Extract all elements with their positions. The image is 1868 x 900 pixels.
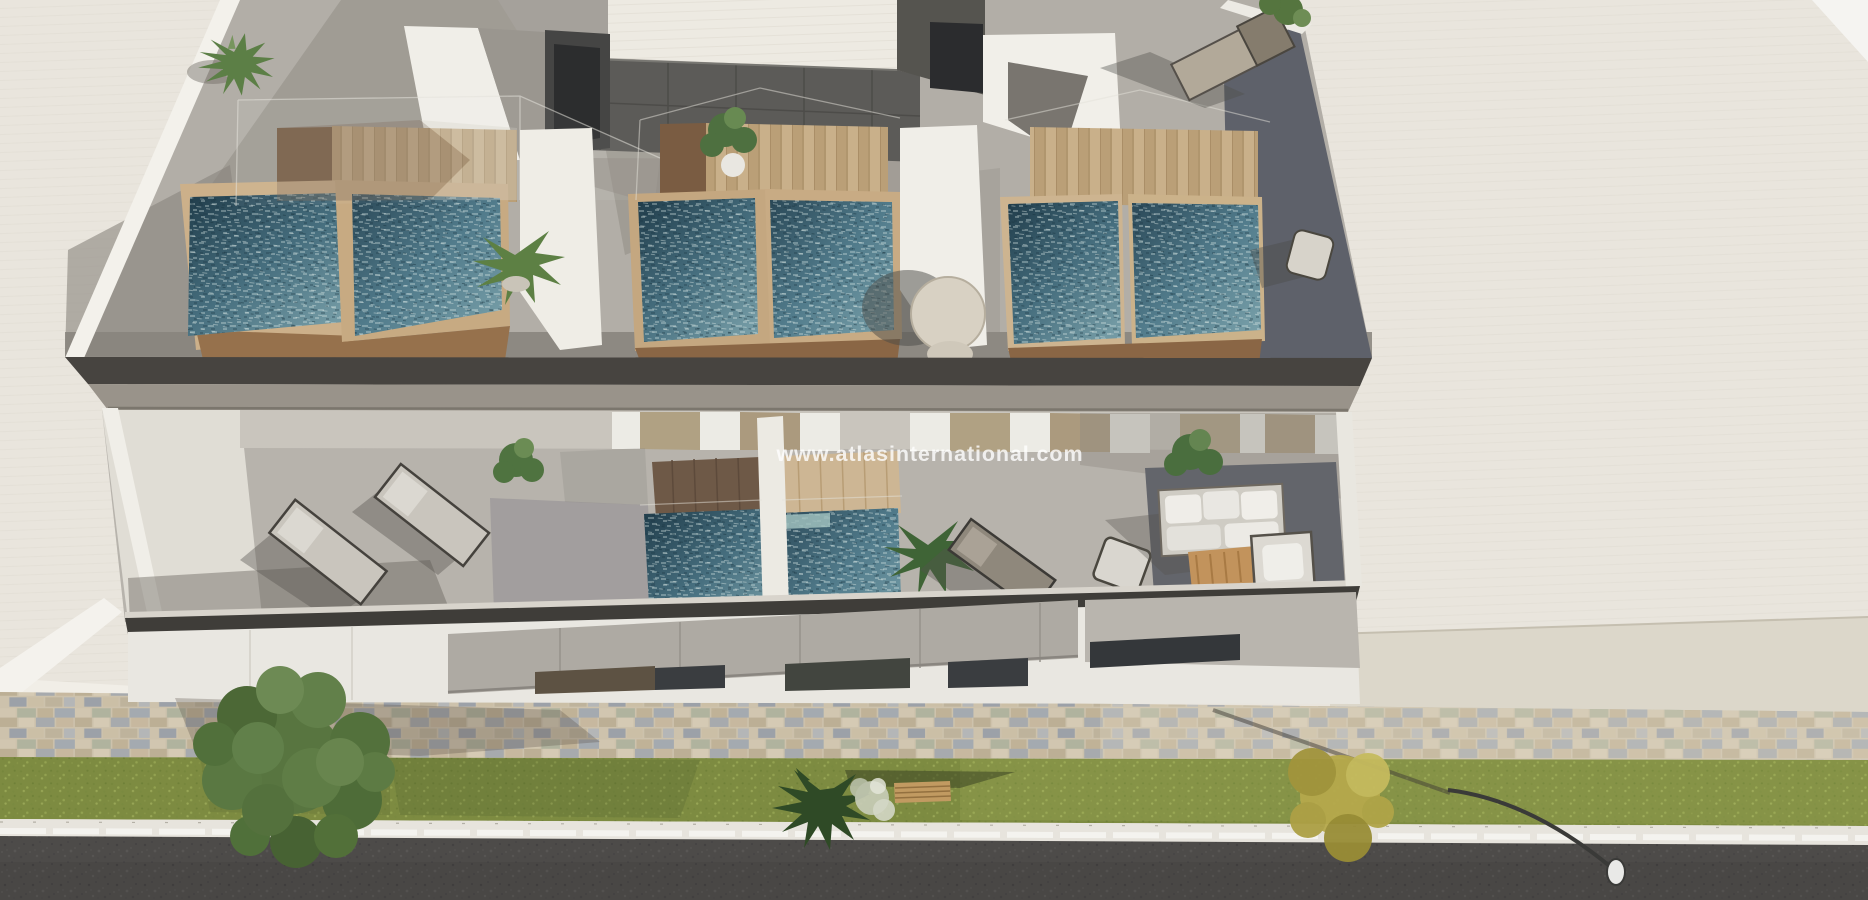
svg-text:www.atlasinternational.com: www.atlasinternational.com [776,442,1084,466]
